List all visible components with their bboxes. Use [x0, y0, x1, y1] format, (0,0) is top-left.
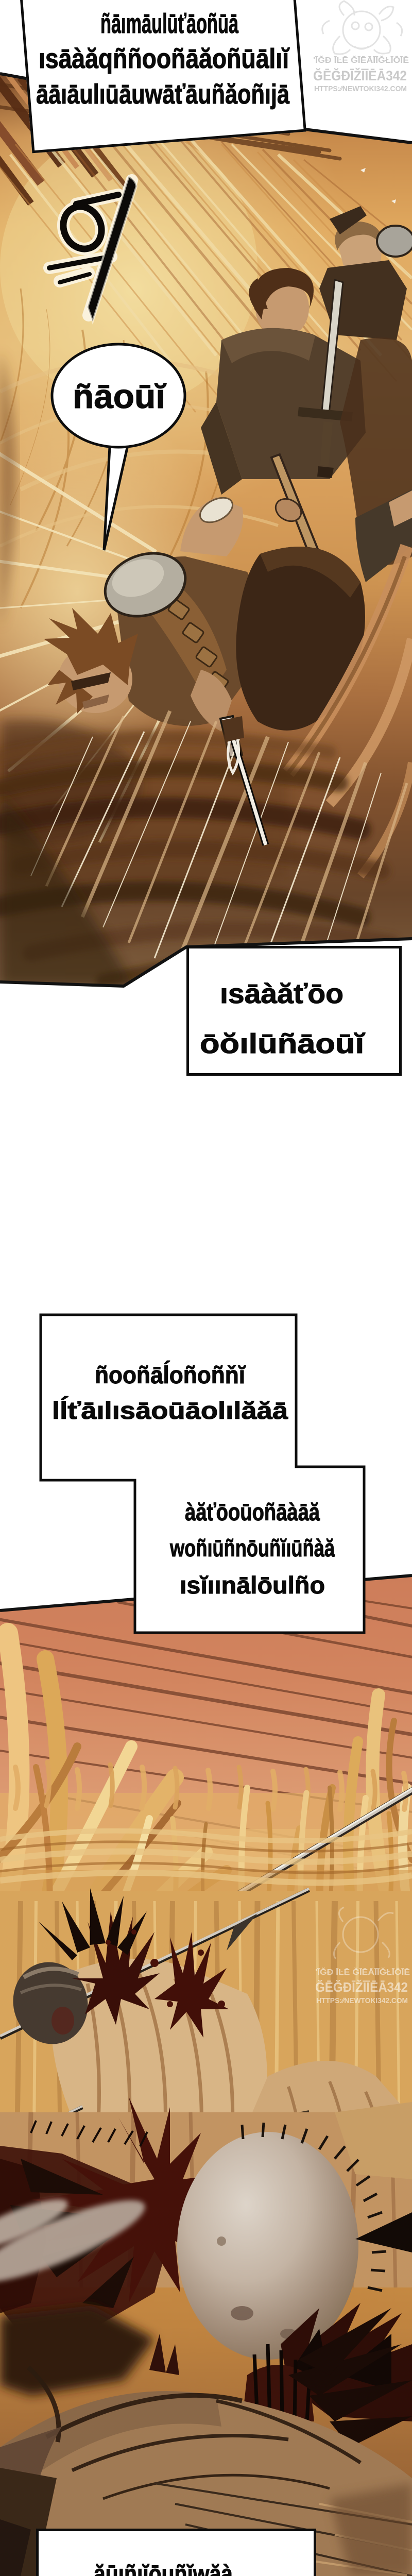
svg-text:ĞĒĞĐĪŽĪĪĒĀ342: ĞĒĞĐĪŽĪĪĒĀ342: [315, 1979, 408, 1995]
svg-text:HTTPS:∕∕NEWTOKI342.COM: HTTPS:∕∕NEWTOKI342.COM: [316, 1996, 408, 2005]
svg-text:ısāàăqññooñāăoñūālıĭ: ısāàăqññooñāăoñūālıĭ: [39, 43, 290, 74]
svg-text:āāıāulıūāuwāťāuñăoñıjā: āāıāulıūāuwāťāuñăoñıjā: [36, 79, 290, 110]
svg-text:ñāoūĭ: ñāoūĭ: [73, 377, 167, 415]
svg-text:ōŏılūñāoūĭ: ōŏılūñāoūĭ: [200, 1028, 365, 1059]
svg-text:'ĪĞĐ ĪĿĒ ĞĪĒĀĪĪĞŁĪŌĪĒ: 'ĪĞĐ ĪĿĒ ĞĪĒĀĪĪĞŁĪŌĪĒ: [313, 55, 409, 65]
svg-text:ñooñāĺoñoñňĭ: ñooñāĺoñoñňĭ: [95, 1361, 246, 1388]
svg-text:HTTPS:∕∕NEWTOKI342.COM: HTTPS:∕∕NEWTOKI342.COM: [314, 84, 407, 93]
svg-text:ısāàăťōo: ısāàăťōo: [220, 978, 344, 1009]
svg-text:ñāımāulūťāoñūā: ñāımāulūťāoñūā: [100, 8, 239, 39]
svg-text:ĞĒĞĐĪŽĪĪĒĀ342: ĞĒĞĐĪŽĪĪĒĀ342: [313, 67, 407, 83]
svg-text:àăťōoūoñāàāă: àăťōoūoñāàāă: [185, 1498, 320, 1526]
svg-text:woñıūñnōuñĭıūñàă: woñıūñnōuñĭıūñàă: [169, 1534, 335, 1562]
svg-text:lĺťāılısāoūāolılăăā: lĺťāılısāoūāolılăăā: [52, 1397, 288, 1424]
svg-text:ısĭıınālōulño: ısĭıınālōulño: [180, 1571, 325, 1599]
svg-text:'ĪĞĐ ĪĿĒ ĞĪĒĀĪĪĞŁĪŌĪĒ: 'ĪĞĐ ĪĿĒ ĞĪĒĀĪĪĞŁĪŌĪĒ: [315, 1967, 410, 1977]
svg-text:ăūıñıĭōuñĭwăà: ăūıñıĭōuñĭwăà: [94, 2561, 233, 2576]
